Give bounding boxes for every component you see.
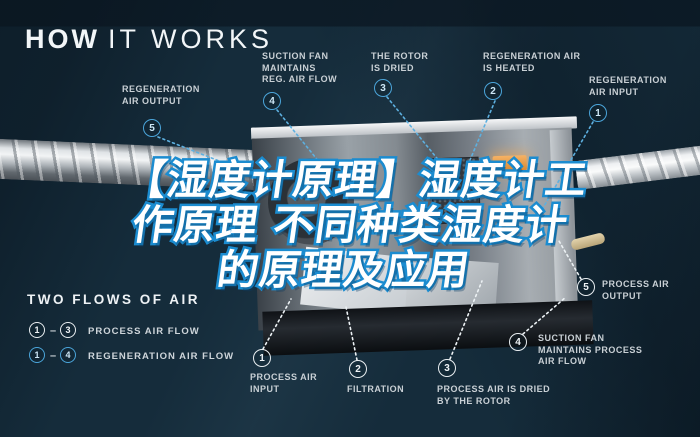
callout-process-air-dried-num: 3 [438,359,456,377]
headline-line-3: 的原理及应用 [26,248,662,293]
legend-regen-label: REGENERATION AIR FLOW [88,351,234,362]
headline-line-2: 作原理 不同种类湿度计 [32,203,668,248]
legend-process-from-num: 1 [29,322,45,338]
callout-regen-air-heated-num: 2 [484,82,502,100]
legend-title: TWO FLOWS OF AIR [27,292,200,307]
headline-line-1: 【湿度计原理】湿度计工 [38,158,674,203]
callout-suction-fan-process-num: 4 [509,333,527,351]
title-bold: HOW [25,24,100,54]
callout-suction-fan-process-label: SUCTION FAN MAINTAINS PROCESS AIR FLOW [538,333,642,368]
callout-filtration-label: FILTRATION [347,384,404,396]
legend-regen-from-num: 1 [29,347,45,363]
callout-regen-air-heated-label: REGENERATION AIR IS HEATED [483,51,581,74]
callout-suction-fan-reg-num: 4 [263,92,281,110]
callout-regen-air-input-num: 1 [589,104,607,122]
callout-process-air-input-num: 1 [253,349,271,367]
callout-rotor-dried-label: THE ROTOR IS DRIED [371,51,428,74]
callout-suction-fan-reg-label: SUCTION FAN MAINTAINS REG. AIR FLOW [262,51,337,86]
legend-process-to-num: 3 [60,322,76,338]
callout-process-air-dried-label: PROCESS AIR IS DRIED BY THE ROTOR [437,384,550,407]
legend-regen-dash: – [50,350,56,362]
callout-rotor-dried-num: 3 [374,79,392,97]
callout-filtration-num: 2 [349,360,367,378]
title-light: IT WORKS [108,24,273,54]
infographic-canvas: HOWIT WORKS [0,0,700,437]
callout-process-air-input-label: PROCESS AIR INPUT [250,372,317,395]
callout-regen-air-input-label: REGENERATION AIR INPUT [589,75,667,98]
legend-regen-to-num: 4 [60,347,76,363]
headline-overlay: 【湿度计原理】湿度计工 作原理 不同种类湿度计 的原理及应用 [26,158,675,293]
legend-process-dash: – [50,325,56,337]
page-title: HOWIT WORKS [25,24,273,55]
callout-regen-air-output-num: 5 [143,119,161,137]
callout-regen-air-output-label: REGENERATION AIR OUTPUT [122,84,200,107]
legend-process-label: PROCESS AIR FLOW [88,326,200,337]
